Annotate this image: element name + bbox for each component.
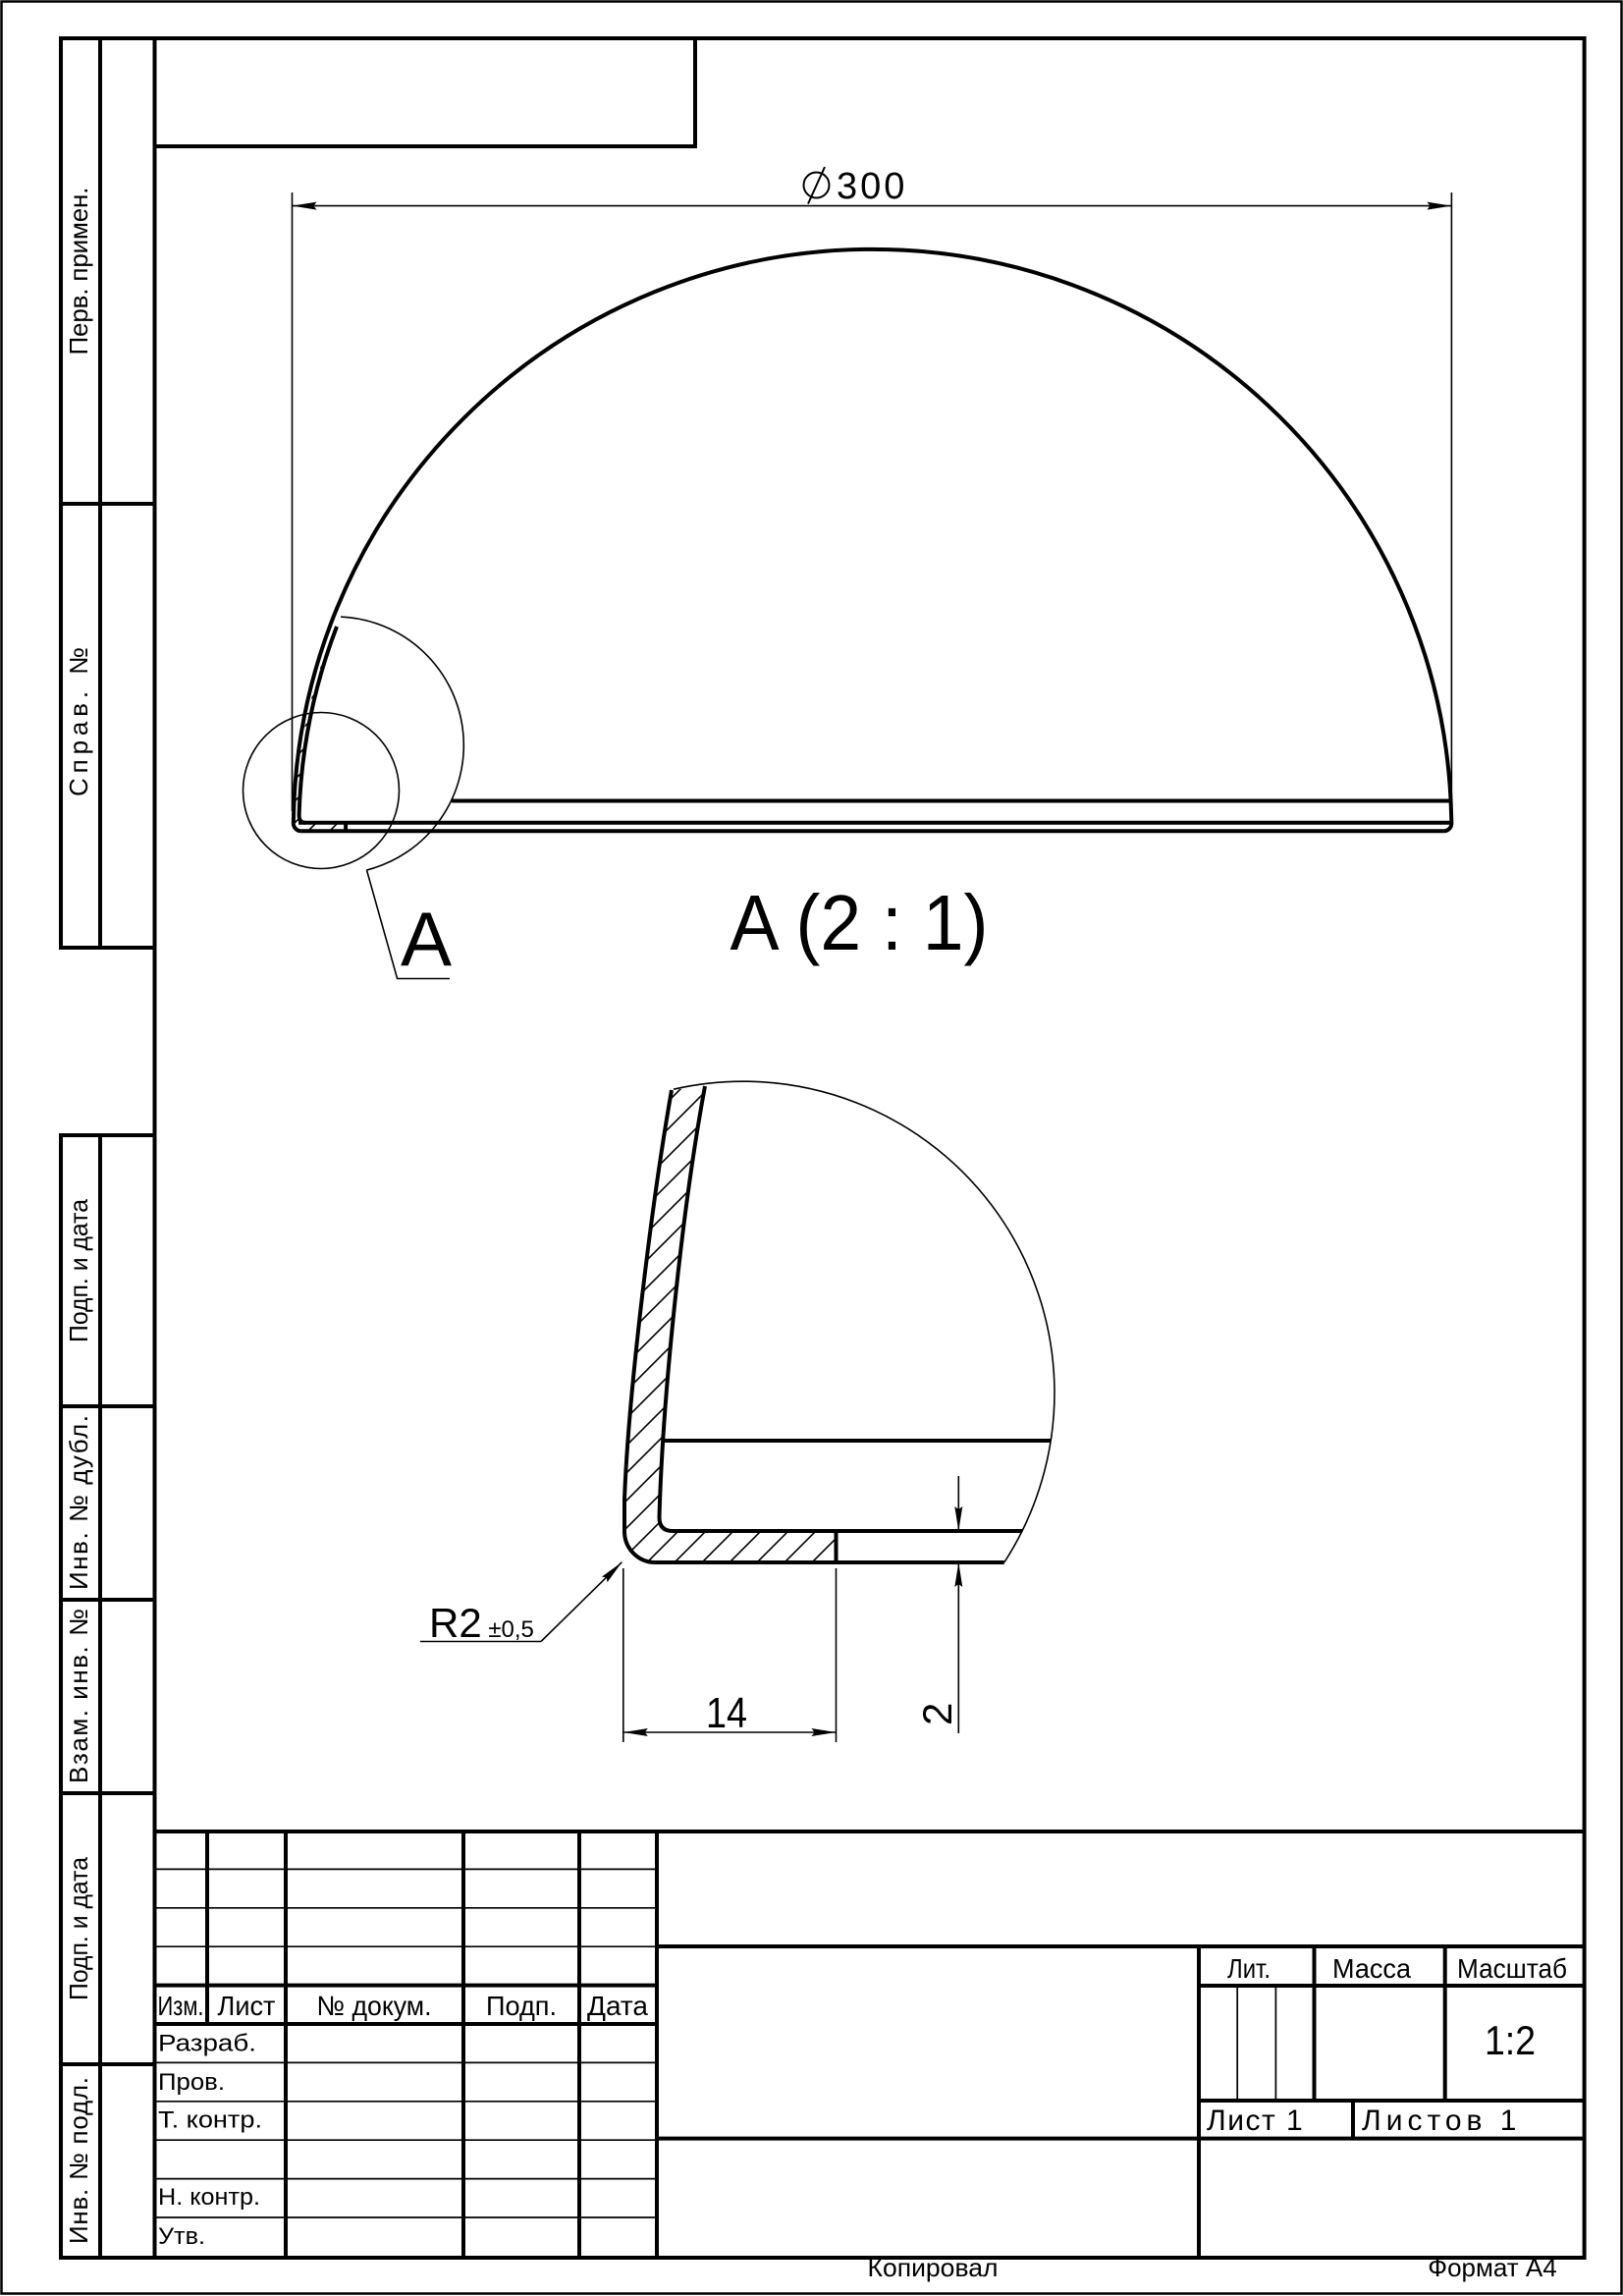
svg-text:A: A	[401, 896, 452, 982]
svg-text:A (2 : 1): A (2 : 1)	[730, 879, 989, 966]
svg-text:Копировал: Копировал	[868, 2253, 999, 2282]
svg-text:14: 14	[706, 1689, 747, 1737]
svg-text:Справ. №: Справ. №	[64, 647, 93, 796]
svg-text:1:2: 1:2	[1485, 2017, 1536, 2063]
svg-text:Лист 1: Лист 1	[1207, 2105, 1304, 2137]
svg-text:2: 2	[914, 1703, 960, 1725]
svg-text:№ докум.: № докум.	[317, 1991, 432, 2021]
svg-text:Т. контр.: Т. контр.	[158, 2107, 262, 2134]
svg-text:Листов 1: Листов 1	[1362, 2105, 1522, 2137]
svg-text:Лит.: Лит.	[1227, 1953, 1271, 1984]
svg-text:Лист: Лист	[218, 1991, 276, 2021]
svg-text:Подп. и дата: Подп. и дата	[64, 1856, 93, 2000]
svg-text:Подп.: Подп.	[486, 1991, 557, 2021]
svg-text:Изм.: Изм.	[158, 1991, 204, 2021]
svg-text:Инв. № подл.: Инв. № подл.	[64, 2077, 93, 2244]
svg-text:Масштаб: Масштаб	[1457, 1953, 1567, 1984]
svg-text:Разраб.: Разраб.	[158, 2031, 256, 2057]
svg-text:Масса: Масса	[1332, 1953, 1411, 1984]
svg-text:Инв. № дубл.: Инв. № дубл.	[64, 1415, 93, 1590]
svg-text:Пров.: Пров.	[158, 2069, 225, 2096]
svg-text:Взам. инв. №: Взам. инв. №	[64, 1609, 93, 1783]
svg-text:Н. контр.: Н. контр.	[158, 2184, 260, 2211]
svg-text:Подп. и дата: Подп. и дата	[64, 1198, 93, 1342]
svg-text:Утв.: Утв.	[158, 2223, 205, 2250]
svg-text:Формат А4: Формат А4	[1428, 2253, 1556, 2282]
svg-text:Дата: Дата	[587, 1991, 648, 2021]
svg-text:Перв. примен.: Перв. примен.	[64, 188, 93, 355]
svg-text:300: 300	[837, 166, 907, 207]
